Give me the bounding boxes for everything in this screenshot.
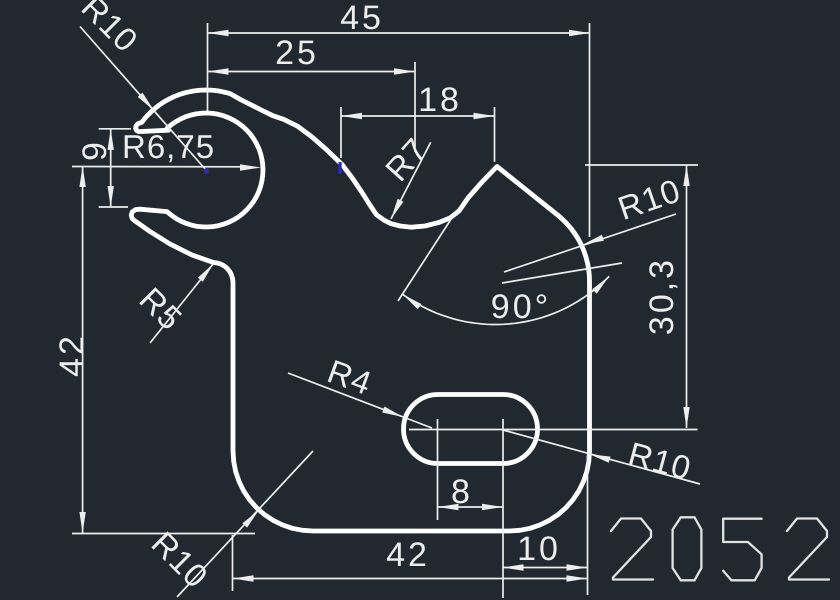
svg-text:30,3: 30,3 [643,257,681,335]
svg-text:90°: 90° [491,288,551,326]
svg-text:10: 10 [517,530,561,568]
svg-text:9: 9 [76,139,114,161]
svg-text:18: 18 [418,81,462,119]
svg-text:8: 8 [451,473,473,511]
svg-text:42: 42 [53,333,91,377]
svg-text:45: 45 [340,0,384,37]
svg-text:25: 25 [275,34,319,72]
svg-text:42: 42 [386,536,430,574]
svg-text:R6,75: R6,75 [122,128,215,165]
